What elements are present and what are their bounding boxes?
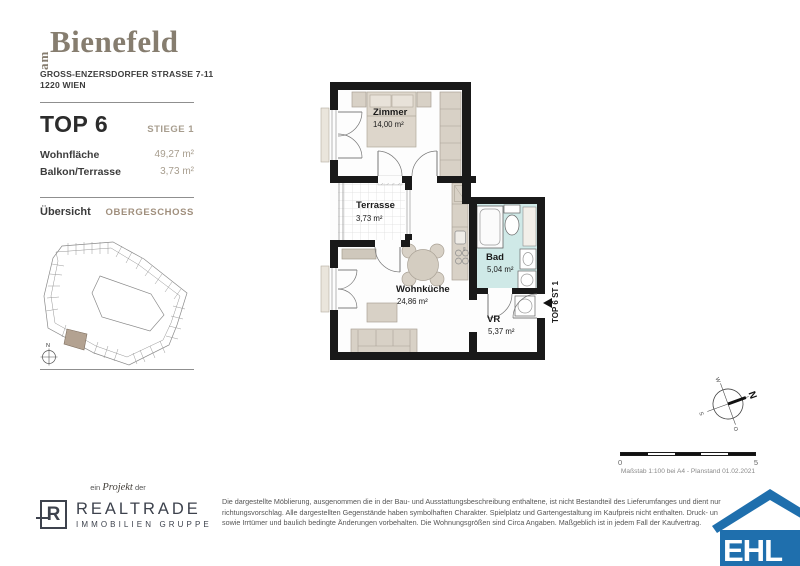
- bath-sink: [520, 249, 536, 269]
- byline-pre: ein: [90, 483, 100, 492]
- divider: [40, 197, 194, 198]
- compass-north: N: [746, 390, 759, 401]
- bathtub: [477, 206, 503, 248]
- realtrade-monogram-icon: R: [40, 500, 67, 529]
- vr-storage: [515, 296, 535, 316]
- project-address: GROSS-ENZERSDORFER STRASSE 7-11 1220 WIE…: [40, 69, 213, 91]
- shaft: [523, 207, 536, 246]
- room-area: 3,73 m²: [356, 214, 383, 223]
- scale-end: 5: [754, 458, 758, 467]
- wardrobe: [440, 92, 461, 177]
- overview-header: Übersicht OBERGESCHOSS: [40, 206, 194, 218]
- fact-row: Balkon/Terrasse 3,73 m²: [40, 163, 194, 180]
- compass-west: W: [714, 377, 722, 385]
- sideboard: [342, 249, 376, 259]
- room-area: 24,86 m²: [397, 297, 428, 306]
- realtrade-logo: R REALTRADE IMMOBILIEN GRUPPE: [40, 500, 212, 529]
- project-byline: ein Projekt der: [38, 482, 198, 493]
- fact-value: 3,73 m²: [160, 166, 194, 177]
- unit-title: TOP 6: [40, 111, 108, 138]
- room-area: 5,37 m²: [488, 327, 515, 336]
- pillow: [370, 95, 391, 107]
- site-compass-icon: N: [41, 343, 58, 366]
- brand-logo: Bienefeld: [50, 24, 179, 60]
- room-name: Bad: [486, 252, 504, 263]
- toilet: [504, 205, 520, 235]
- overview-title: Übersicht: [40, 206, 91, 218]
- brand-prefix: am: [36, 36, 51, 70]
- room-name: VR: [487, 314, 500, 325]
- address-line-2: 1220 WIEN: [40, 80, 213, 91]
- scale-bar-segments: [620, 452, 756, 456]
- svg-text:N: N: [46, 343, 50, 349]
- scale-bar: 0 5 Maßstab 1:100 bei A4 - Planstand 01.…: [620, 452, 756, 456]
- room-area: 14,00 m²: [373, 120, 404, 129]
- fact-label: Balkon/Terrasse: [40, 166, 121, 178]
- compass-south: S: [697, 411, 704, 417]
- site-overview-plan: N: [38, 236, 198, 368]
- disclaimer-line: Die dargestellte Möblierung, ausgenommen…: [222, 497, 752, 508]
- ehl-logo: EHL: [712, 486, 800, 566]
- unit-header: TOP 6 STIEGE 1: [40, 111, 194, 138]
- compass-rose: N O S W: [696, 376, 760, 436]
- nightstand: [352, 92, 366, 107]
- divider: [40, 369, 194, 370]
- staircase-label: STIEGE 1: [147, 124, 194, 138]
- ehl-roof-icon: [712, 489, 800, 533]
- disclaimer-line: sowie Irrtümer und baulich bedingte Ände…: [222, 518, 752, 529]
- dining-table: [408, 250, 439, 281]
- kitchen-sink: [455, 231, 466, 244]
- room-area: 5,04 m²: [487, 265, 514, 274]
- ehl-wordmark: EHL: [723, 533, 782, 566]
- fact-label: Wohnfläche: [40, 149, 99, 161]
- washing-machine: [518, 271, 536, 289]
- bathroom: [475, 204, 537, 289]
- pillow: [392, 95, 413, 107]
- compass-east: O: [731, 426, 738, 433]
- realtrade-name: REALTRADE: [76, 501, 212, 518]
- unit-facts: Wohnfläche 49,27 m² Balkon/Terrasse 3,73…: [40, 146, 194, 180]
- byline-word: Projekt: [102, 482, 133, 493]
- byline-post: der: [135, 483, 146, 492]
- unit-marker-label: TOP 6 ST 1: [551, 280, 560, 322]
- floor-level-label: OBERGESCHOSS: [106, 207, 195, 218]
- scale-start: 0: [618, 458, 622, 467]
- sofa: [351, 329, 417, 353]
- fact-value: 49,27 m²: [155, 149, 194, 160]
- room-name: Zimmer: [373, 107, 408, 118]
- room-name: Wohnküche: [396, 284, 450, 295]
- address-line-1: GROSS-ENZERSDORFER STRASSE 7-11: [40, 69, 213, 80]
- disclaimer-line: richtungsvorschlag. Alle dargestellten G…: [222, 508, 752, 519]
- room-name: Terrasse: [356, 200, 395, 211]
- nightstand: [417, 92, 431, 107]
- scale-caption: Maßstab 1:100 bei A4 - Planstand 01.02.2…: [586, 468, 790, 475]
- floorplan-sheet: am Bienefeld GROSS-ENZERSDORFER STRASSE …: [0, 0, 800, 566]
- divider: [40, 102, 194, 103]
- coffee-table: [367, 303, 397, 322]
- fact-row: Wohnfläche 49,27 m²: [40, 146, 194, 163]
- realtrade-subtitle: IMMOBILIEN GRUPPE: [76, 520, 212, 529]
- apartment-floorplan: 60: [315, 74, 567, 366]
- legal-disclaimer: Die dargestellte Möblierung, ausgenommen…: [222, 497, 752, 529]
